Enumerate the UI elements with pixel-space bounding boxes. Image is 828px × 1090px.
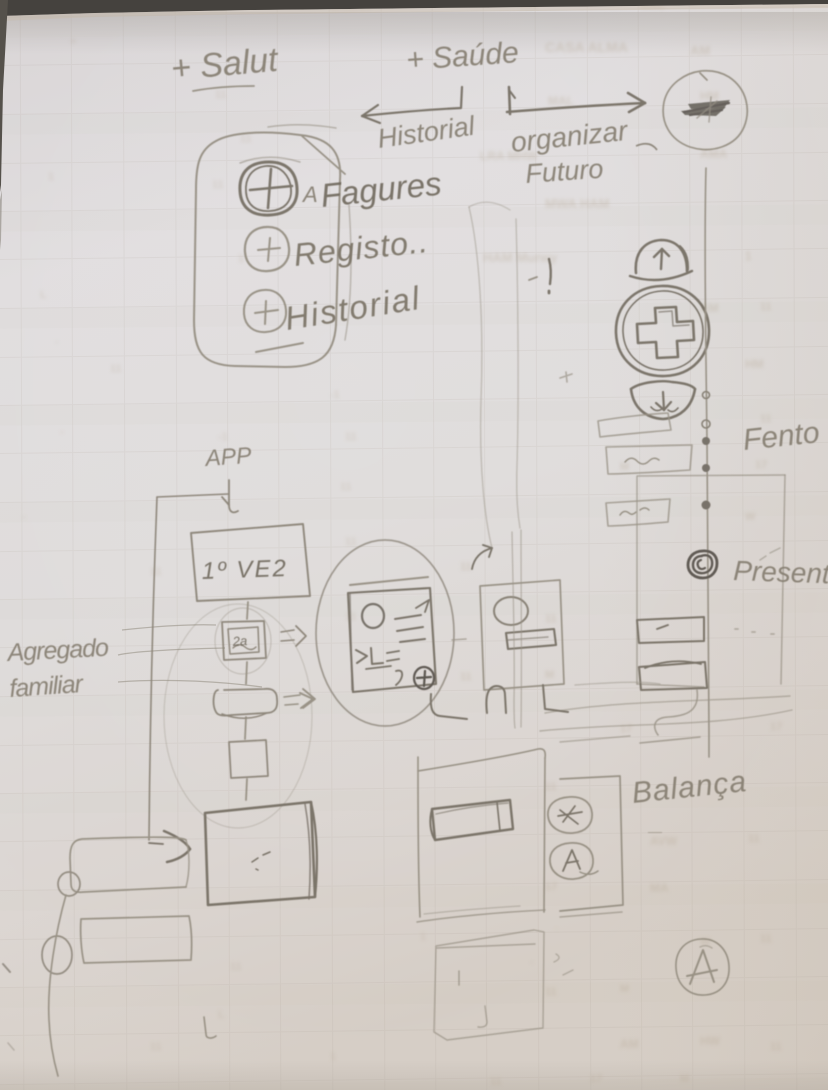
svg-text:AM: AM	[620, 1037, 639, 1051]
svg-text:-1: -1	[218, 431, 228, 443]
svg-text:11: 11	[215, 89, 227, 101]
svg-text:MAL: MAL	[548, 94, 574, 108]
svg-text:1: 1	[420, 931, 426, 943]
svg-text:-: -	[22, 511, 26, 523]
svg-text:11: 11	[345, 536, 357, 548]
svg-text:HM: HM	[700, 89, 719, 103]
svg-text:M: M	[545, 669, 554, 681]
svg-text:HAM Murwy: HAM Murwy	[483, 250, 558, 265]
svg-text:MWA HAM: MWA HAM	[545, 196, 610, 211]
svg-text:W: W	[745, 511, 756, 523]
svg-text:11: 11	[110, 363, 122, 375]
svg-text:11: 11	[760, 933, 772, 945]
svg-text:11: 11	[760, 301, 772, 313]
svg-text:.: .	[555, 921, 558, 933]
svg-text:AM: AM	[690, 43, 710, 58]
svg-text:L: L	[218, 1009, 225, 1021]
svg-text:M: M	[680, 1073, 689, 1085]
svg-text:11: 11	[150, 566, 162, 578]
svg-text:-: -	[530, 956, 534, 968]
svg-text:Agregado: Agregado	[5, 634, 110, 667]
svg-text:17: 17	[590, 1073, 602, 1085]
svg-text:APP: APP	[203, 442, 253, 471]
svg-text:17: 17	[770, 721, 782, 733]
svg-text:11: 11	[460, 561, 472, 573]
svg-text:1: 1	[330, 1051, 336, 1063]
svg-text:1: 1	[238, 253, 244, 265]
svg-text:11: 11	[748, 833, 760, 845]
svg-text:Futuro: Futuro	[524, 154, 604, 189]
svg-text:Presente: Presente	[733, 555, 828, 590]
svg-text:11: 11	[545, 986, 557, 998]
svg-text:familiar: familiar	[8, 670, 85, 703]
svg-text:1: 1	[48, 171, 54, 183]
svg-text:11: 11	[150, 1041, 162, 1053]
svg-text:M: M	[620, 461, 629, 473]
svg-text:11: 11	[770, 1041, 782, 1053]
svg-text:11: 11	[230, 961, 242, 973]
svg-text:11: 11	[240, 133, 252, 145]
svg-text:11: 11	[212, 179, 224, 191]
svg-text:A: A	[301, 182, 318, 207]
svg-text:1: 1	[745, 249, 752, 263]
svg-text:11: 11	[545, 781, 557, 793]
svg-text:+: +	[70, 36, 76, 48]
svg-text:-1: -1	[330, 389, 340, 401]
svg-text:11: 11	[460, 671, 472, 683]
svg-text:M: M	[620, 983, 629, 995]
svg-text:CASA ALMA: CASA ALMA	[545, 39, 628, 55]
svg-text:-: -	[55, 336, 59, 348]
svg-text:17: 17	[545, 881, 557, 893]
svg-text:-: -	[60, 426, 64, 438]
svg-text:2a: 2a	[231, 633, 247, 649]
svg-text:1º VE2: 1º VE2	[201, 555, 288, 585]
svg-text:—: —	[647, 823, 663, 839]
svg-text:11: 11	[545, 613, 557, 625]
svg-text:L: L	[40, 289, 47, 301]
svg-text:11: 11	[340, 481, 352, 493]
svg-text:17: 17	[755, 459, 767, 471]
svg-text:HM: HM	[745, 357, 764, 371]
svg-text:HW: HW	[700, 1034, 721, 1048]
svg-text:11: 11	[490, 1076, 502, 1088]
svg-text:11: 11	[345, 431, 357, 443]
svg-text:MA: MA	[650, 881, 669, 895]
